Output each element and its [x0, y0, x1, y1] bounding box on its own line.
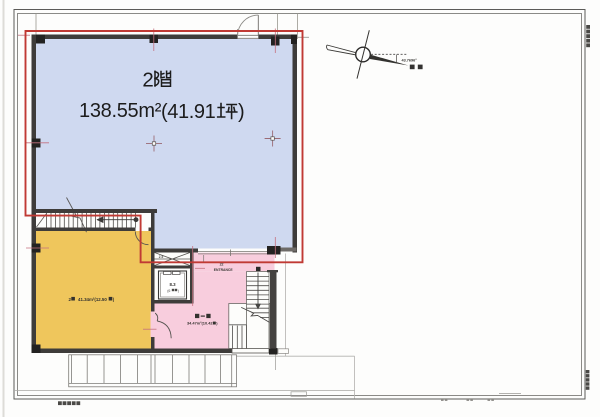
svg-text:138.55m²: 138.55m²	[79, 100, 162, 122]
svg-text:(41.91: (41.91	[161, 101, 216, 123]
svg-text:22: 22	[220, 263, 224, 267]
svg-text:2.5: 2.5	[159, 255, 164, 259]
svg-text:): )	[178, 289, 179, 293]
svg-text:43.7696°: 43.7696°	[402, 59, 418, 63]
svg-text:): )	[238, 101, 245, 123]
svg-text:34.47m²(10.42: 34.47m²(10.42	[187, 321, 213, 326]
svg-text:8.3: 8.3	[169, 282, 176, 287]
svg-text:ENTRANCE: ENTRANCE	[214, 268, 234, 272]
svg-text:2: 2	[142, 69, 153, 92]
svg-text:(6: (6	[167, 289, 170, 293]
svg-text:41.34m²(12.50: 41.34m²(12.50	[78, 297, 107, 302]
